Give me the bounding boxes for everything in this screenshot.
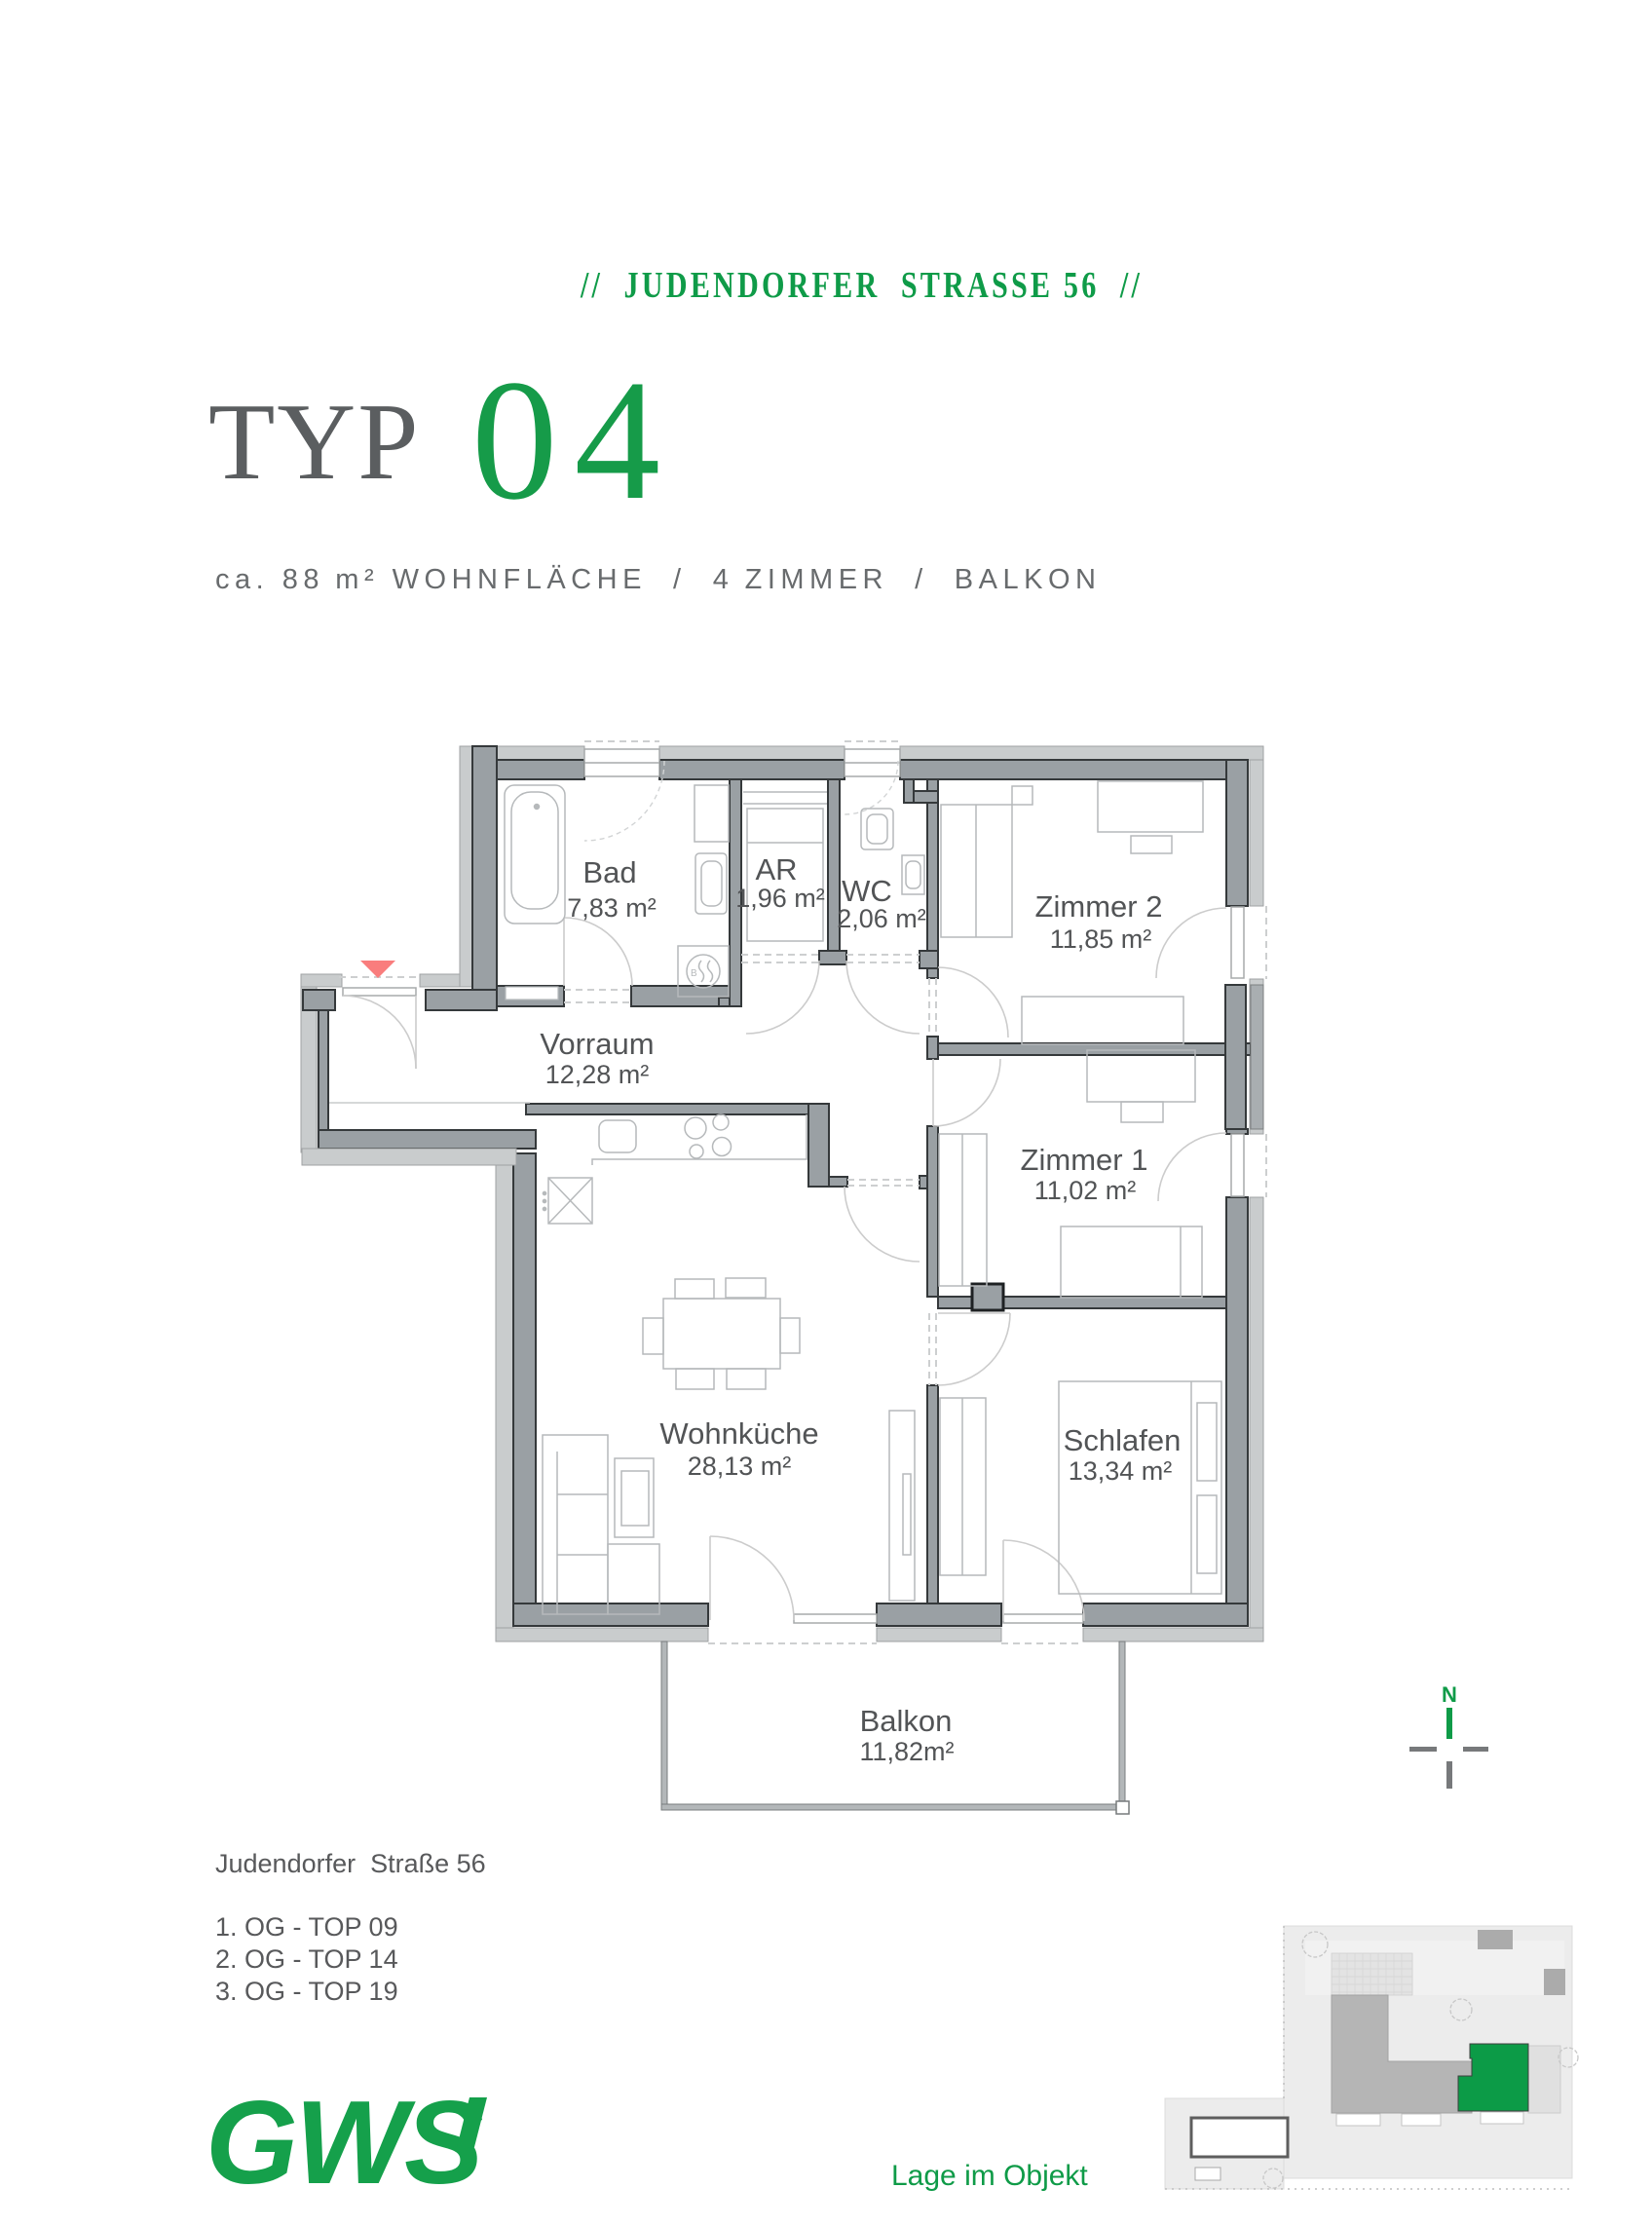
svg-text:Lage im Objekt: Lage im Objekt — [891, 2160, 1088, 2192]
svg-text:12,28 m²: 12,28 m² — [545, 1060, 650, 1089]
svg-text:11,85 m²: 11,85 m² — [1050, 924, 1152, 954]
svg-text:7,83 m²: 7,83 m² — [567, 893, 657, 923]
svg-text:2,06 m²: 2,06 m² — [837, 904, 926, 933]
svg-text:Vorraum: Vorraum — [540, 1027, 654, 1061]
svg-text:Zimmer 1: Zimmer 1 — [1021, 1143, 1148, 1177]
svg-text:11,82m²: 11,82m² — [859, 1737, 954, 1766]
svg-text:1,96 m²: 1,96 m² — [735, 884, 825, 913]
svg-text:Wohnküche: Wohnküche — [659, 1416, 818, 1451]
svg-text:11,02 m²: 11,02 m² — [1034, 1176, 1137, 1205]
svg-text:04: 04 — [471, 345, 677, 536]
svg-text:N: N — [1442, 1682, 1457, 1707]
svg-text:28,13 m²: 28,13 m² — [688, 1452, 792, 1481]
svg-text:TYP: TYP — [208, 382, 421, 503]
svg-text:GWS: GWS — [206, 2076, 483, 2208]
svg-text:WC: WC — [842, 874, 892, 908]
svg-text:Zimmer 2: Zimmer 2 — [1035, 889, 1163, 924]
svg-text:3. OG - TOP 19: 3. OG - TOP 19 — [215, 1977, 398, 2006]
svg-text:Balkon: Balkon — [860, 1704, 953, 1738]
svg-text:AR: AR — [755, 852, 797, 887]
svg-text:Judendorfer Straße 56: Judendorfer Straße 56 — [215, 1849, 486, 1878]
svg-text:ca. 88 m² WOHNFLÄCHE / 4 ZIM: ca. 88 m² WOHNFLÄCHE / 4 ZIMMER / BALKON — [215, 564, 1101, 595]
svg-text:1. OG - TOP 09: 1. OG - TOP 09 — [215, 1912, 398, 1942]
svg-text:// JUDENDORFER STRASSE 56 /: // JUDENDORFER STRASSE 56 // — [580, 265, 1143, 306]
svg-text:13,34 m²: 13,34 m² — [1069, 1456, 1173, 1486]
svg-text:Bad: Bad — [582, 855, 636, 889]
svg-text:2. OG - TOP 14: 2. OG - TOP 14 — [215, 1944, 398, 1974]
svg-text:Schlafen: Schlafen — [1064, 1423, 1182, 1457]
svg-text:B: B — [691, 968, 697, 979]
